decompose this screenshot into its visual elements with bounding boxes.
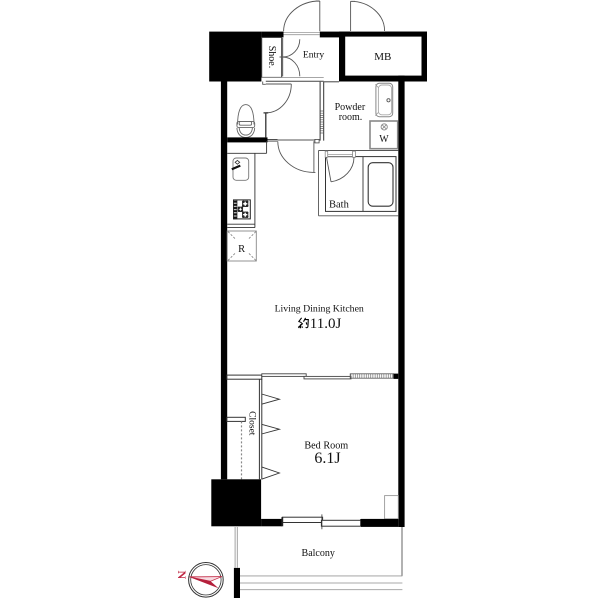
svg-text:Closet: Closet [247,411,257,436]
svg-text:R: R [238,244,245,255]
svg-text:Bath: Bath [329,199,350,210]
svg-text:Balcony: Balcony [302,548,335,559]
svg-text:11.0J: 11.0J [310,316,342,332]
svg-text:6.1J: 6.1J [314,450,340,467]
svg-text:Entry: Entry [303,50,325,61]
svg-text:Shoe.: Shoe. [266,46,277,69]
svg-text:N: N [175,570,189,579]
svg-text:room.: room. [339,112,363,123]
svg-text:W: W [379,134,389,145]
svg-text:Living Dining Kitchen: Living Dining Kitchen [275,304,364,315]
svg-text:MB: MB [374,51,391,63]
